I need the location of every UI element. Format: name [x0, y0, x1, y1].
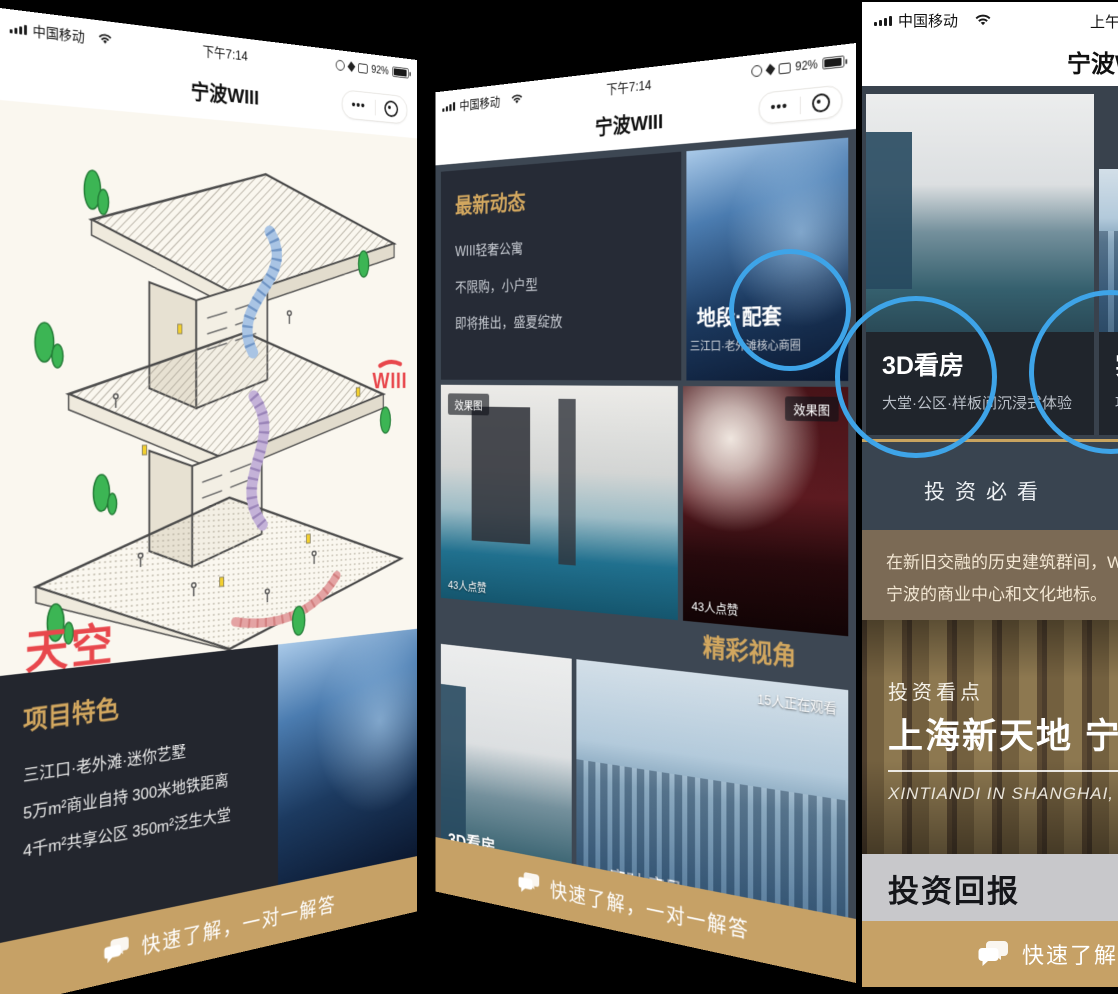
render-card-lounge[interactable]: 效果图 43人点赞	[683, 386, 848, 636]
carrier-label: 中国移动	[898, 10, 958, 31]
wiii-logo: WIII	[372, 358, 407, 394]
more-menu-button[interactable]: •••	[342, 99, 374, 111]
signal-bars-icon	[874, 16, 892, 26]
page-title: 宁波WIII	[1067, 44, 1118, 79]
screenshot-canvas: 中国移动 下午7:14 92% 宁波WIII •••	[0, 0, 1118, 994]
wifi-icon	[974, 13, 992, 27]
logo-swoosh-icon	[378, 358, 402, 368]
bluetooth-icon	[766, 64, 776, 76]
invest-spot-banner[interactable]: 投资看点 上海新天地 宁波 XINTIANDI IN SHANGHAI, SHI…	[862, 620, 1118, 854]
phone-screen-left: 中国移动 下午7:14 92% 宁波WIII •••	[0, 8, 417, 994]
viewers-count: 15人正在观看	[757, 689, 837, 718]
consult-cta-bar[interactable]: 快速了解，一对一解答	[862, 921, 1118, 987]
phone-screen-right: 中国移动 上午 宁波WIII 3D看房 大堂·公区·样板间沉浸式体验 实时·实景…	[862, 2, 1118, 987]
close-minimize-button[interactable]	[375, 99, 406, 119]
right-status-bar: 中国移动 上午	[862, 8, 1118, 30]
chat-bubbles-icon	[518, 870, 541, 898]
battery-percent: 92%	[795, 57, 818, 73]
bedroom-pano-image	[866, 94, 1094, 332]
invest-section-title: 投资必看	[924, 476, 1048, 506]
roi-title: 投资回报	[888, 866, 1020, 911]
render-badge: 效果图	[448, 393, 489, 415]
likes-count: 43人点赞	[692, 596, 739, 618]
sketch-building-art	[0, 100, 417, 676]
intro-text-panel: 在新旧交融的历史建筑群间，WIII 宁波的商业中心和文化地标。	[862, 530, 1118, 620]
spot-subtitle-en: XINTIANDI IN SHANGHAI, SHIK	[888, 784, 1118, 804]
battery-icon	[392, 66, 408, 78]
render-card-gym[interactable]: 效果图 43人点赞	[441, 385, 678, 620]
bluetooth-icon	[347, 61, 355, 72]
phone-screen-middle: 中国移动 下午7:14 92% 宁波WIII ••• 最新动态 WII	[435, 43, 856, 983]
dnd-icon	[779, 62, 791, 74]
target-icon	[812, 93, 830, 114]
spot-title: 上海新天地 宁波	[888, 708, 1118, 759]
battery-icon	[822, 55, 844, 69]
latest-news-panel: 最新动态 WIII轻奢公寓 不限购，小户型 即将推出，盛夏绽放	[441, 152, 681, 381]
roi-section: 投资回报	[862, 854, 1118, 921]
intro-line: 在新旧交融的历史建筑群间，WIII	[886, 548, 1118, 573]
battery-percent: 92%	[371, 63, 388, 77]
target-icon	[384, 100, 398, 118]
dnd-icon	[358, 63, 368, 74]
spot-label: 投资看点	[888, 676, 984, 705]
close-minimize-button[interactable]	[800, 91, 841, 114]
city-night-thumbnail[interactable]	[278, 629, 417, 885]
spot-divider	[888, 770, 1118, 772]
hero-illustration[interactable]: 天空 跑道。 WIII	[0, 100, 417, 676]
right-header: 中国移动 上午 宁波WIII	[862, 2, 1118, 86]
annotation-ring-location	[729, 249, 851, 371]
status-time: 上午	[1090, 11, 1118, 32]
intro-line: 宁波的商业中心和文化地标。	[886, 580, 1107, 605]
chat-bubbles-icon	[104, 934, 131, 965]
alarm-icon	[751, 65, 762, 78]
consult-cta-label: 快速了解，一对一解答	[1022, 938, 1118, 970]
news-title: 最新动态	[455, 172, 681, 219]
render-badge: 效果图	[785, 396, 839, 421]
annotation-ring-3d	[835, 296, 997, 458]
likes-count: 43人点赞	[448, 575, 487, 595]
more-menu-button[interactable]: •••	[759, 100, 799, 114]
alarm-icon	[336, 60, 345, 72]
chat-bubbles-icon	[978, 940, 1010, 968]
news-line: 即将推出，盛夏绽放	[455, 301, 681, 343]
